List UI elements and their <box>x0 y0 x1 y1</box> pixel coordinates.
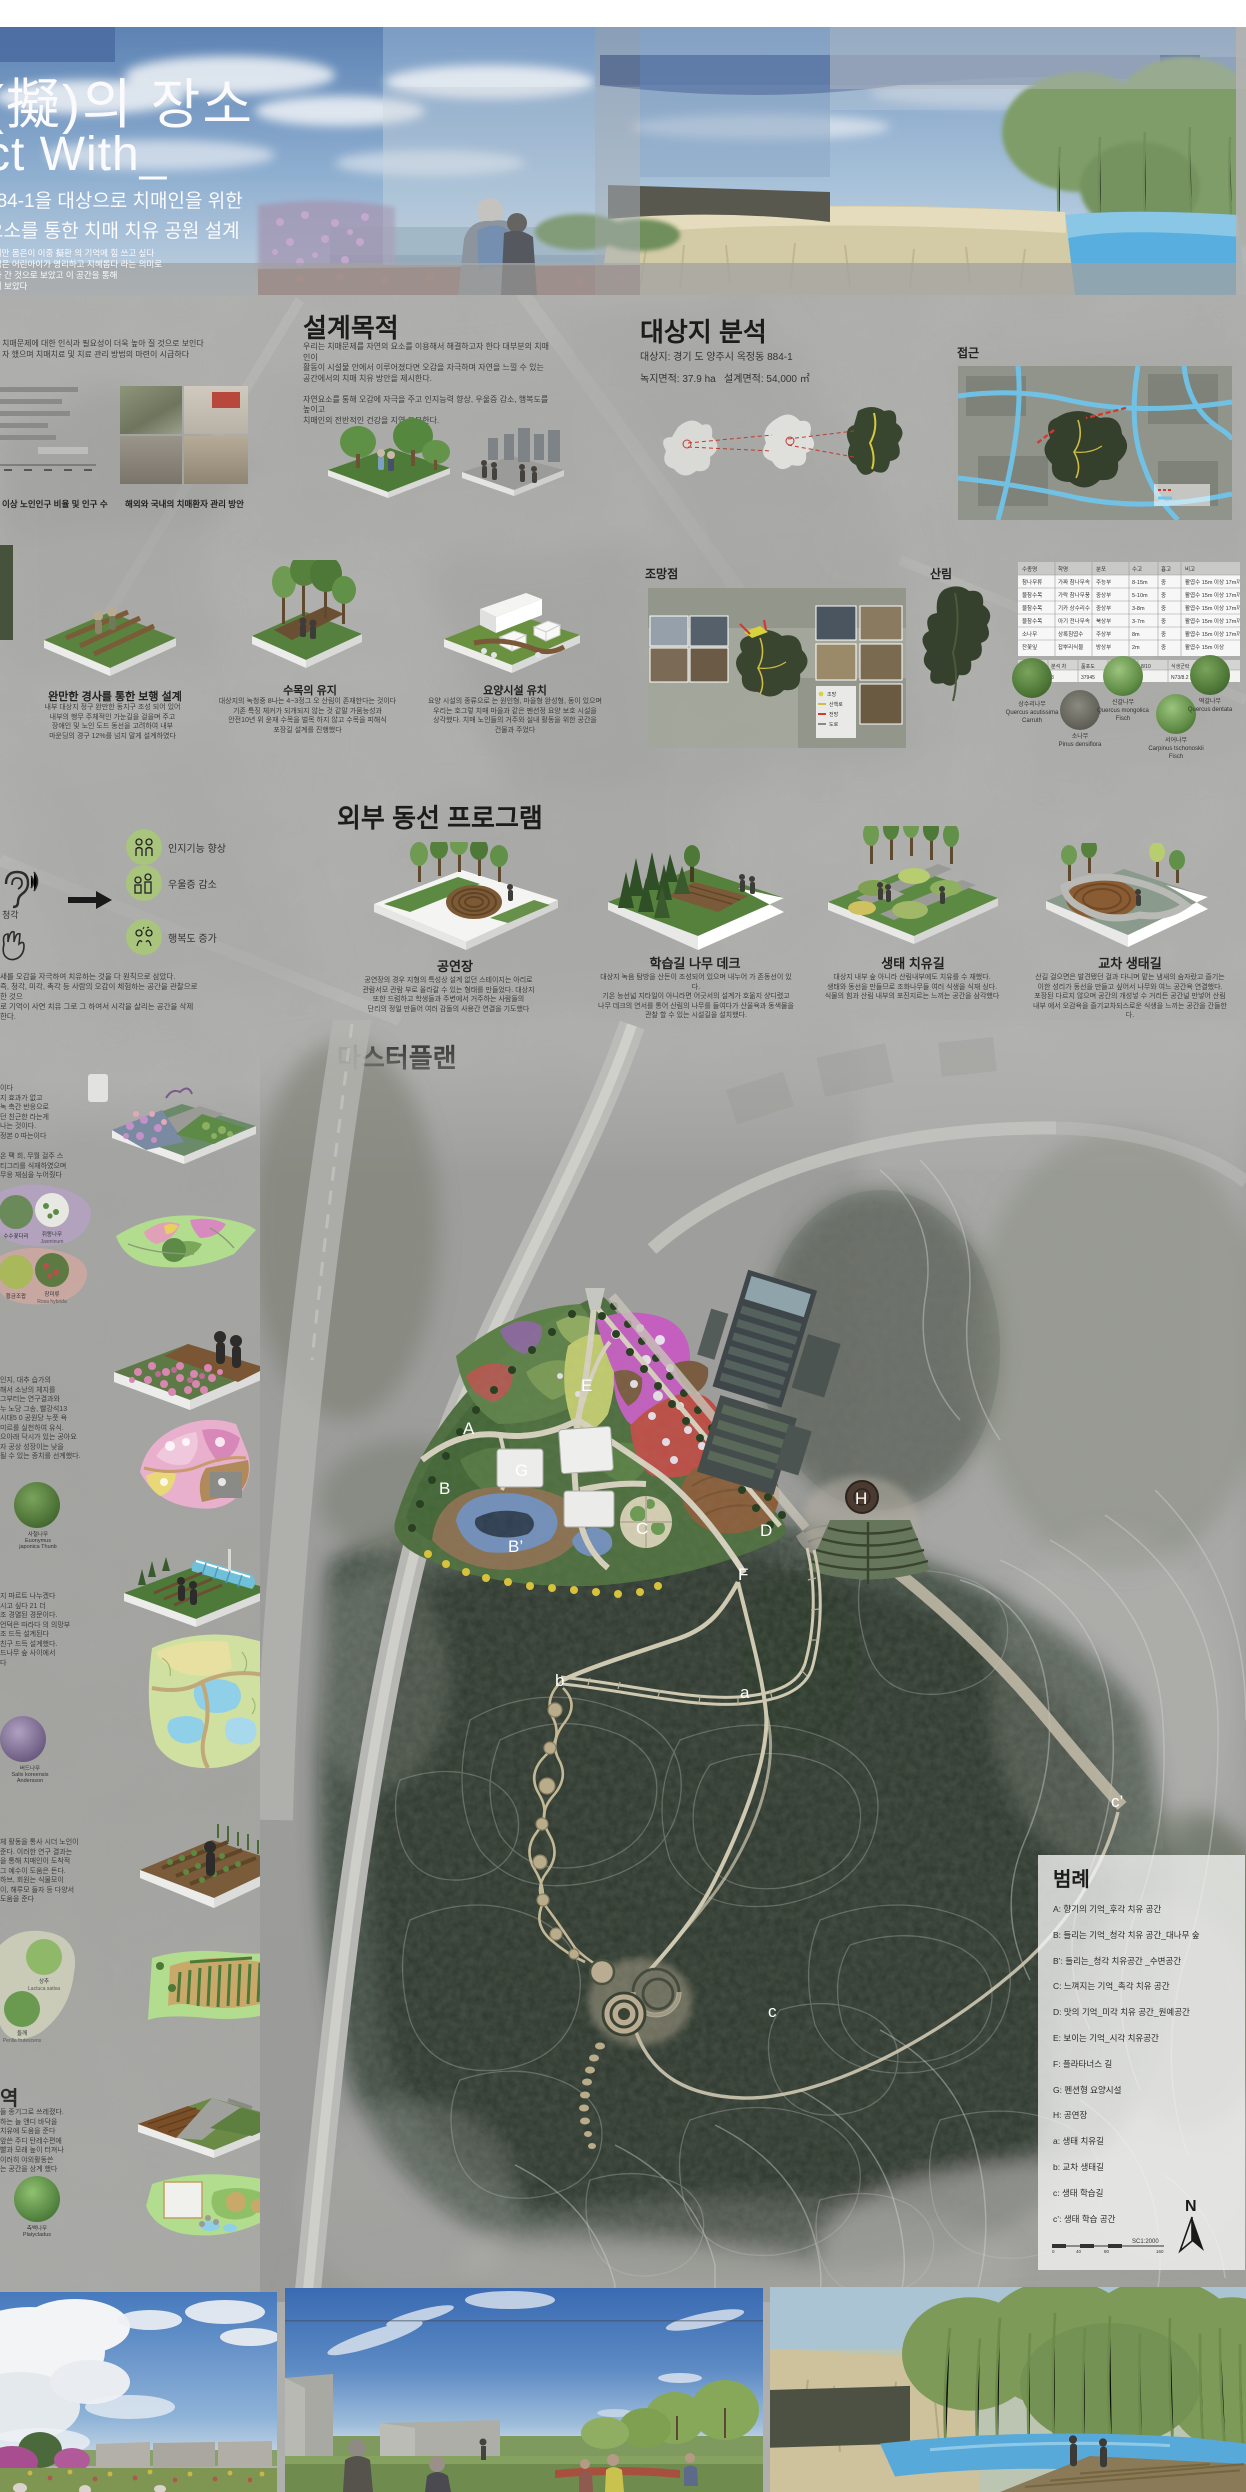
svg-text:주능부: 주능부 <box>1096 579 1111 586</box>
svg-text:상록침엽수: 상록침엽수 <box>1058 630 1083 638</box>
svg-text:기카 상수리수: 기카 상수리수 <box>1058 604 1090 612</box>
svg-text:3-7m: 3-7m <box>1132 619 1145 625</box>
svg-text:가짜 참나무속: 가짜 참나무속 <box>1058 578 1090 586</box>
svg-text:b: b <box>555 1671 564 1690</box>
svg-text:활엽수 15m 이상 17m까지: 활엽수 15m 이상 17m까지 <box>1185 604 1240 612</box>
svg-text:상수리나무: 상수리나무 <box>1018 700 1046 708</box>
svg-text:물참수목: 물참수목 <box>1022 617 1042 625</box>
svg-text:활엽수 15m 이상 17m까지: 활엽수 15m 이상 17m까지 <box>1185 630 1240 638</box>
svg-text:중: 중 <box>1161 631 1166 638</box>
svg-text:쥐똥나무: 쥐똥나무 <box>42 1230 62 1238</box>
svg-text:C: C <box>636 1519 648 1538</box>
svg-text:0: 0 <box>1052 2249 1055 2253</box>
svg-text:Carruth: Carruth <box>1022 718 1042 724</box>
svg-text:B’: B’ <box>508 1537 523 1556</box>
svg-text:학명: 학명 <box>1058 565 1068 573</box>
svg-text:중: 중 <box>1161 579 1166 586</box>
svg-text:들깨: 들깨 <box>17 2029 27 2037</box>
svg-text:참나무류: 참나무류 <box>1022 578 1042 586</box>
svg-text:c: c <box>768 2002 777 2021</box>
svg-text:Carpinus tschonoskii: Carpinus tschonoskii <box>1148 746 1203 752</box>
svg-text:중상부: 중상부 <box>1096 591 1111 599</box>
svg-text:아기 전나무속: 아기 전나무속 <box>1058 617 1090 625</box>
svg-text:Fisch: Fisch <box>1116 716 1130 722</box>
svg-text:상추: 상추 <box>39 1977 49 1985</box>
svg-text:8m: 8m <box>1132 632 1140 638</box>
svg-text:G: G <box>515 1461 528 1480</box>
svg-text:Quercus mongolica: Quercus mongolica <box>1097 708 1149 714</box>
svg-text:물참수목: 물참수목 <box>1022 591 1042 599</box>
svg-text:D: D <box>760 1521 772 1540</box>
svg-text:흉고: 흉고 <box>1161 565 1171 573</box>
svg-text:장미류: 장미류 <box>44 1290 59 1298</box>
svg-text:Quercus dentata: Quercus dentata <box>1188 707 1233 713</box>
svg-text:40: 40 <box>1076 2249 1082 2253</box>
svg-text:조망: 조망 <box>827 691 837 698</box>
svg-text:수고: 수고 <box>1132 566 1142 573</box>
svg-text:황금조팝: 황금조팝 <box>6 1292 26 1300</box>
svg-text:도로: 도로 <box>829 722 839 728</box>
svg-text:중: 중 <box>1161 618 1166 625</box>
svg-text:Perilla frutescens: Perilla frutescens <box>3 2038 42 2044</box>
svg-text:수종명: 수종명 <box>1022 566 1037 573</box>
svg-text:a: a <box>740 1683 750 1702</box>
svg-text:중상부: 중상부 <box>1096 604 1111 612</box>
svg-text:c’: c’ <box>1111 1792 1123 1811</box>
svg-text:활엽수 15m 이상 17m까지: 활엽수 15m 이상 17m까지 <box>1185 578 1240 586</box>
svg-text:F: F <box>738 1565 748 1584</box>
svg-text:B: B <box>439 1479 450 1498</box>
svg-text:중: 중 <box>1161 592 1166 599</box>
svg-text:A: A <box>463 1419 475 1438</box>
svg-text:Lactuca sativa: Lactuca sativa <box>28 1986 60 1992</box>
svg-text:5-10m: 5-10m <box>1132 593 1148 599</box>
svg-text:북상부: 북상부 <box>1096 617 1111 625</box>
svg-text:중: 중 <box>1161 605 1166 612</box>
svg-text:수수꽃다리: 수수꽃다리 <box>3 1232 28 1240</box>
svg-text:비고: 비고 <box>1185 565 1195 573</box>
svg-text:Fisch: Fisch <box>1169 754 1183 760</box>
svg-text:Jasminum: Jasminum <box>41 1239 64 1245</box>
svg-text:서어나무: 서어나무 <box>1165 736 1188 744</box>
svg-text:물참수목: 물참수목 <box>1022 604 1042 612</box>
svg-text:Pinus densiflora: Pinus densiflora <box>1059 742 1102 748</box>
svg-text:8-15m: 8-15m <box>1132 580 1148 586</box>
svg-text:E: E <box>581 1376 592 1395</box>
svg-text:Quercus acutissima: Quercus acutissima <box>1006 710 1059 716</box>
svg-text:Rosa hybrida: Rosa hybrida <box>37 1299 67 1305</box>
svg-text:3-8m: 3-8m <box>1132 606 1145 612</box>
svg-text:분포: 분포 <box>1096 566 1106 573</box>
svg-text:활엽수 15m 이상 17m까지: 활엽수 15m 이상 17m까지 <box>1185 617 1240 625</box>
svg-text:80: 80 <box>1104 2249 1110 2253</box>
svg-text:소나무: 소나무 <box>1072 732 1089 740</box>
svg-text:전망: 전망 <box>829 711 839 718</box>
svg-text:H: H <box>855 1489 867 1508</box>
svg-text:SC1:2000: SC1:2000 <box>1132 2239 1159 2245</box>
svg-text:신갈나무: 신갈나무 <box>1112 698 1135 706</box>
svg-text:가락 참나무풍: 가락 참나무풍 <box>1058 591 1090 599</box>
svg-text:소나무: 소나무 <box>1022 630 1037 638</box>
svg-text:주상부: 주상부 <box>1096 630 1111 638</box>
svg-text:활엽수 15m 이상 17m까지: 활엽수 15m 이상 17m까지 <box>1185 591 1240 599</box>
svg-text:N: N <box>1185 2198 1197 2215</box>
svg-text:떡갈나무: 떡갈나무 <box>1199 697 1222 705</box>
svg-text:산책로: 산책로 <box>829 701 843 708</box>
svg-text:160: 160 <box>1156 2249 1164 2253</box>
